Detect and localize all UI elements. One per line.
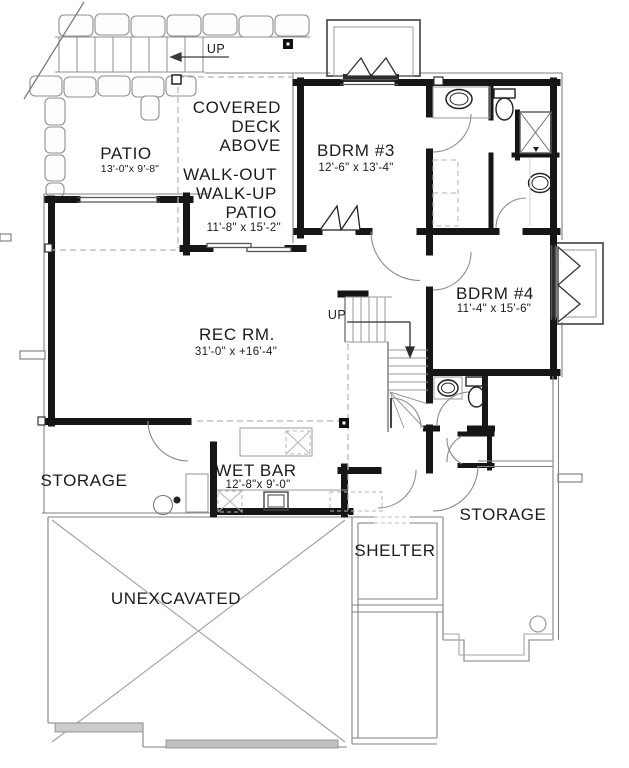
floor-plan-page: UP PATIO 13'-0"x 9'-8" COVERED DECK ABOV… <box>0 0 629 768</box>
shelter-label: SHELTER <box>354 541 435 560</box>
storage-left-door-arc <box>148 421 188 461</box>
patio-label: PATIO <box>100 144 152 163</box>
covered-deck-line1: COVERED <box>193 98 281 117</box>
wet-bar-dims: 12'-8"x 9'-0" <box>225 479 290 491</box>
wet-bar-label: WET BAR <box>215 461 296 480</box>
covered-deck-line3: ABOVE <box>219 136 281 155</box>
stair-door-arc <box>391 398 421 428</box>
bath2-door-arc <box>437 392 470 425</box>
entry-steps <box>55 37 310 72</box>
walkout-line2: WALK-UP <box>196 184 277 203</box>
bifold-doors-bdrm3 <box>320 206 360 230</box>
walkout-line3: PATIO <box>226 203 278 222</box>
covered-deck-line2: DECK <box>231 117 281 136</box>
storage-right-label: STORAGE <box>459 505 546 524</box>
bdrm3-label: BDRM #3 <box>317 141 395 160</box>
island-counter <box>240 428 312 456</box>
stairs-up-label: UP <box>328 308 346 322</box>
floor-drain-icon <box>174 497 181 504</box>
patio-dims: 13'-0"x 9'-8" <box>101 163 159 175</box>
bdrm3-door-arc <box>371 232 420 281</box>
rec-room-label: REC RM. <box>199 325 275 344</box>
unexcavated-area <box>52 520 345 748</box>
window-well-right <box>550 243 603 324</box>
toilet-tank-icon <box>494 89 515 98</box>
bdrm4-label: BDRM #4 <box>456 284 534 303</box>
bath1-door-arc <box>433 114 471 152</box>
utility-area <box>154 474 209 515</box>
water-heater-icon <box>154 496 173 515</box>
entry-up-label: UP <box>207 42 225 56</box>
toilet-bowl-icon <box>496 98 513 120</box>
laundry-door-arc <box>496 198 526 228</box>
footing-tabs <box>0 234 582 482</box>
bathroom-lower <box>434 377 487 407</box>
bdrm4-dims: 11'-4" x 15'-6" <box>457 303 531 315</box>
walkout-dims: 11'-8" x 15'-2" <box>207 222 281 234</box>
vanity-counter <box>433 87 490 118</box>
floor-plan-drawing: UP PATIO 13'-0"x 9'-8" COVERED DECK ABOV… <box>0 0 629 768</box>
unexcavated-label: UNEXCAVATED <box>111 589 241 608</box>
furnace-icon <box>186 474 208 512</box>
sump-icon <box>530 616 546 632</box>
rec-room-dims: 31'-0" x +16'-4" <box>195 346 277 358</box>
hall-shelter-door-arc <box>378 470 416 508</box>
storage-left-label: STORAGE <box>40 471 127 490</box>
window-well-top <box>327 20 420 82</box>
hall-closet-dashed <box>433 160 458 226</box>
walkout-line1: WALK-OUT <box>183 165 277 184</box>
bdrm3-dims: 12'-6" x 13'-4" <box>318 162 393 174</box>
stairs-up-arrow <box>347 322 414 357</box>
stairs <box>345 297 428 432</box>
shelter-walls <box>352 517 443 640</box>
